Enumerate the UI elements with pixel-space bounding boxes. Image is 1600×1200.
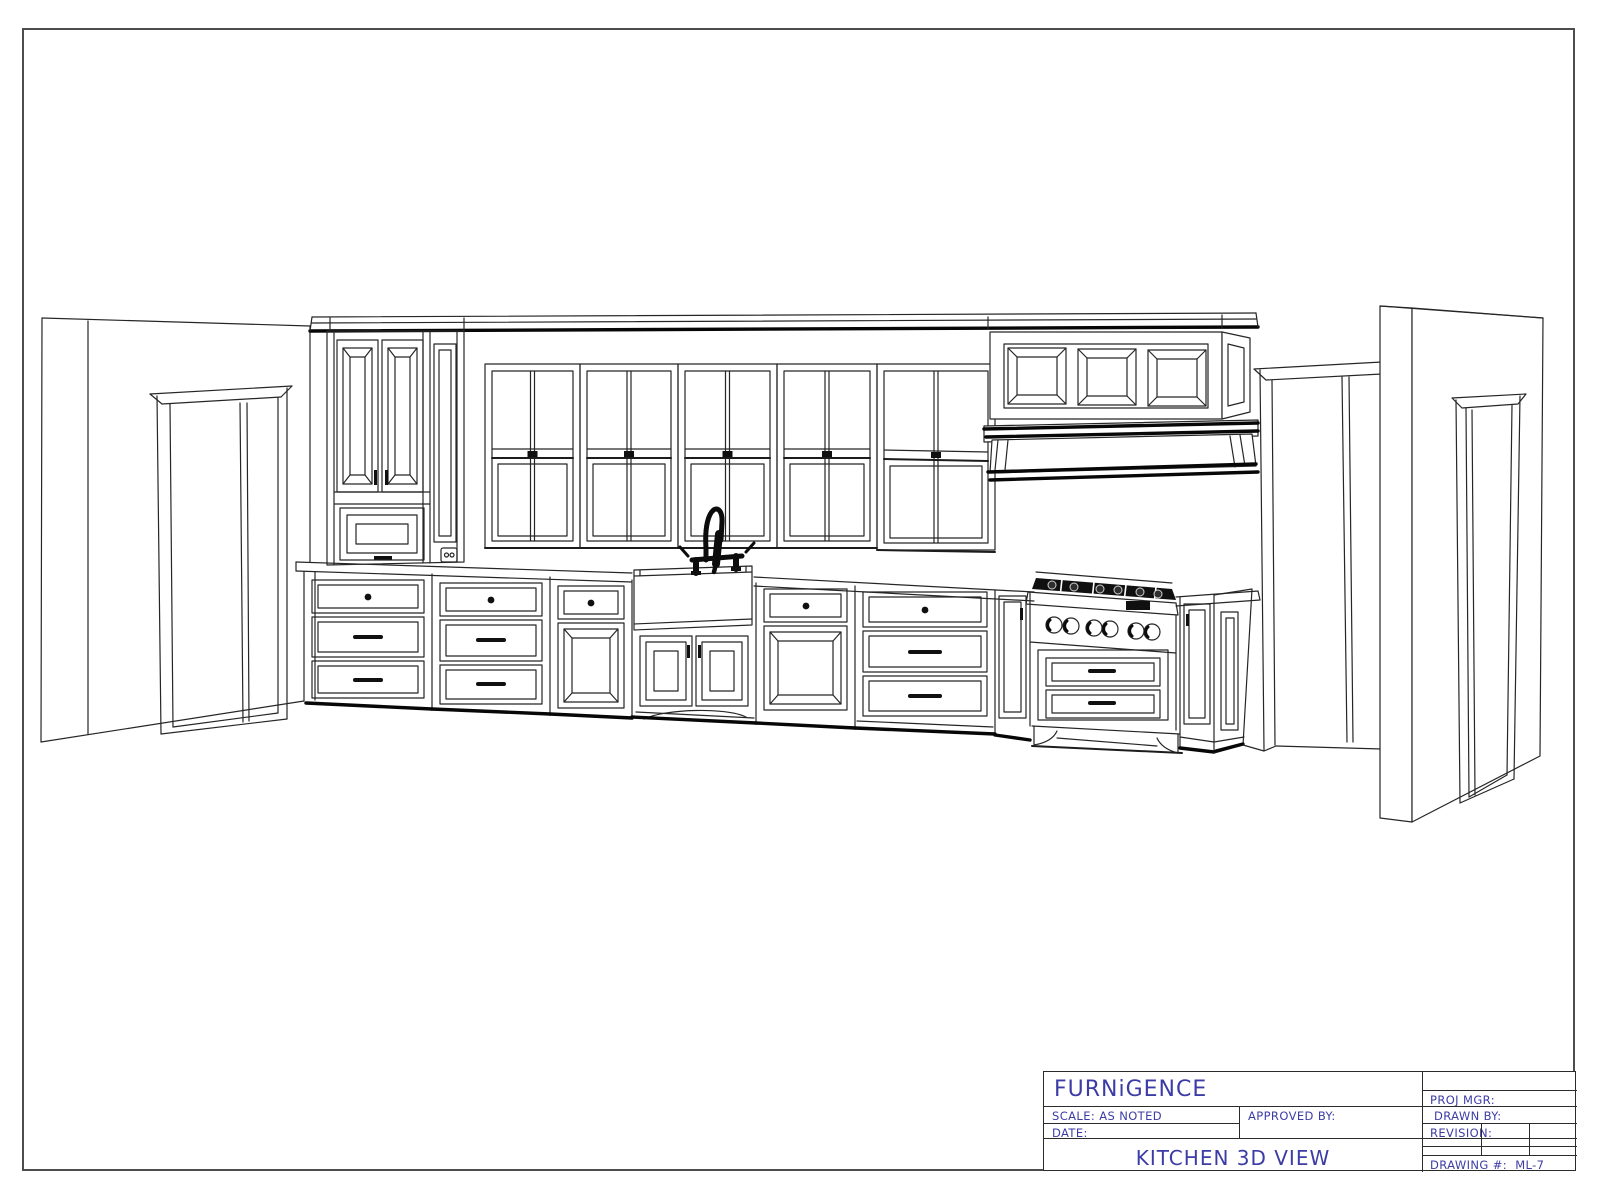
window-1: [485, 364, 580, 548]
revision-row-3: [1422, 1147, 1577, 1156]
base-drawer-door-unit-3: [550, 580, 632, 718]
window-run: [485, 364, 995, 552]
scale-field: SCALE: AS NOTED: [1044, 1107, 1239, 1124]
window-3: [678, 364, 777, 548]
right-door-opening: [1243, 362, 1382, 751]
proj-mgr-field: PROJ MGR:: [1422, 1091, 1577, 1107]
drawing-sheet: { "title_block": { "company": "FURNiGENC…: [0, 0, 1600, 1200]
range: [1026, 572, 1182, 753]
drawn-by-field: DRAWN BY:: [1422, 1107, 1577, 1124]
window-4: [777, 364, 877, 548]
sink-base-cabinet: [632, 566, 756, 723]
company-name: FURNiGENCE: [1044, 1072, 1422, 1107]
end-cabinet: [1214, 589, 1252, 753]
title-block: FURNiGENCE SCALE: AS NOTED APPROVED BY: …: [1043, 1071, 1576, 1171]
approved-by-field: APPROVED BY:: [1239, 1107, 1422, 1139]
view-title: KITCHEN 3D VIEW: [1044, 1139, 1422, 1172]
protruding-wall: [1380, 306, 1543, 822]
revision-subcolumn-line-2: [1529, 1124, 1530, 1156]
base-drawer-door-unit-5: [756, 583, 855, 728]
drawing-number-label: DRAWING #:: [1430, 1158, 1507, 1172]
revision-row-2: [1422, 1139, 1577, 1147]
title-block-empty-row: [1422, 1072, 1577, 1091]
left-wall: [41, 318, 310, 742]
window-5: [877, 364, 995, 552]
range-hood: [984, 332, 1258, 480]
base-drawer-unit-6: [855, 590, 995, 734]
drawing-number-value: ML-7: [1515, 1158, 1544, 1172]
drawing-number-field: DRAWING #: ML-7: [1422, 1156, 1577, 1172]
base-drawer-unit-1: [304, 572, 432, 709]
base-drawer-unit-2: [432, 577, 550, 714]
date-field: DATE:: [1044, 1124, 1239, 1139]
narrow-door-cabinet-right-of-range: [1180, 595, 1214, 753]
window-2: [580, 364, 678, 548]
range-knobs: [1046, 617, 1160, 640]
crown-molding: [310, 313, 1258, 331]
tall-pantry-cabinet: [327, 331, 464, 565]
revision-field: REVISION:: [1422, 1124, 1577, 1139]
kitchen-3d-view-drawing: [0, 0, 1600, 1200]
left-door-opening: [150, 386, 292, 734]
narrow-door-cabinet-left-of-range: [995, 596, 1030, 740]
revision-subcolumn-line-1: [1481, 1124, 1482, 1156]
